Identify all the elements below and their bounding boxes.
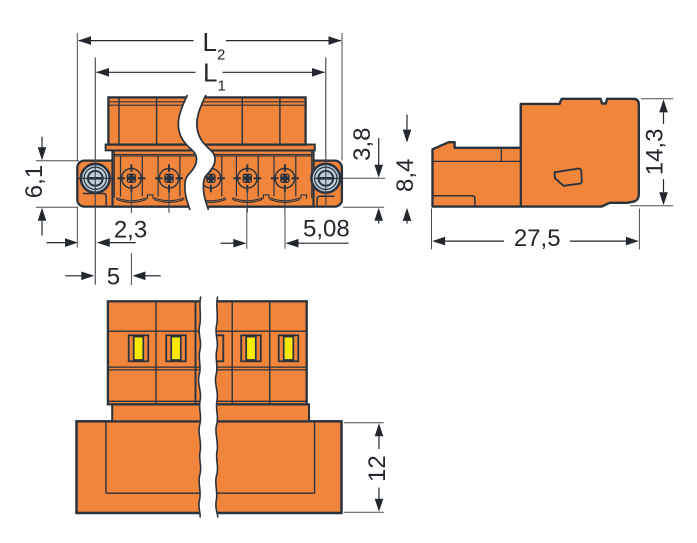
- svg-text:5,08: 5,08: [303, 215, 350, 242]
- svg-text:12: 12: [364, 455, 391, 482]
- svg-text:5: 5: [107, 264, 120, 291]
- svg-text:27,5: 27,5: [514, 225, 561, 252]
- svg-text:6,1: 6,1: [21, 165, 48, 198]
- svg-text:14,3: 14,3: [641, 129, 668, 176]
- svg-text:2,3: 2,3: [114, 216, 147, 243]
- svg-text:8,4: 8,4: [392, 159, 419, 192]
- svg-text:3,8: 3,8: [349, 128, 376, 161]
